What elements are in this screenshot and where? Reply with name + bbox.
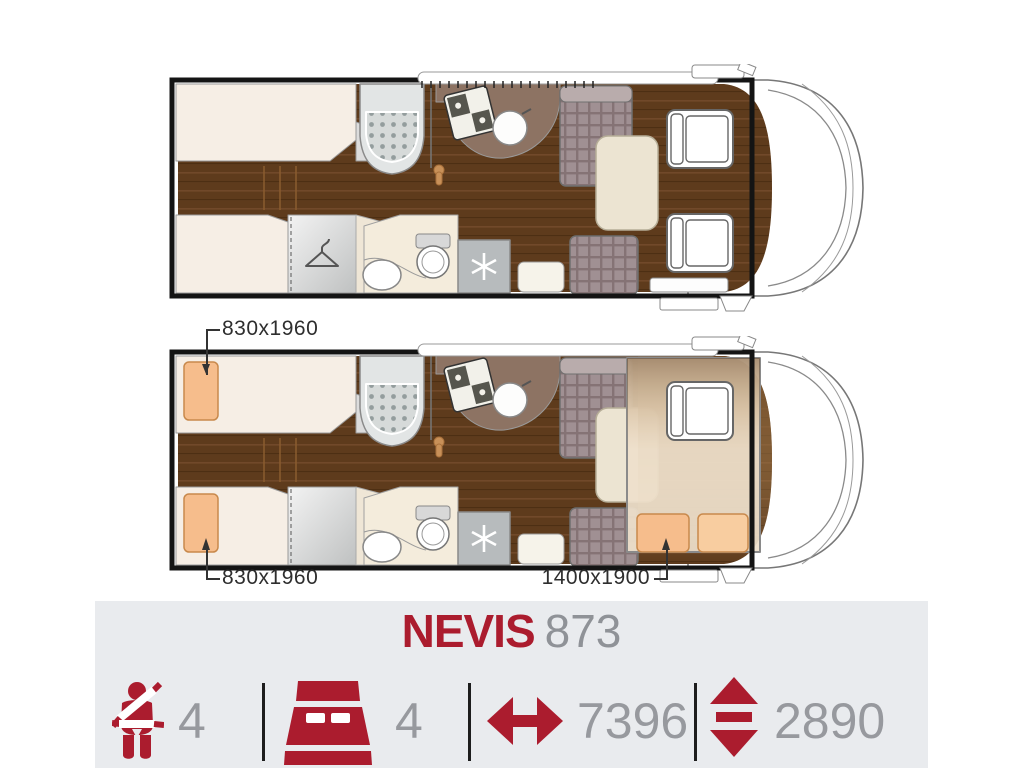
model-name: NEVIS bbox=[402, 605, 535, 657]
model-title: NEVIS873 bbox=[95, 605, 928, 657]
divider bbox=[694, 683, 697, 761]
interior-step bbox=[650, 278, 728, 292]
floorplan-day bbox=[168, 64, 868, 314]
height-value: 2890 bbox=[774, 691, 885, 751]
vertical-double-arrow-icon bbox=[706, 677, 762, 757]
fridge bbox=[458, 512, 510, 565]
bed-dimension-label: 830x1960 bbox=[222, 317, 318, 341]
divider bbox=[468, 683, 471, 761]
kitchen-sink-icon bbox=[493, 383, 527, 417]
beds-value: 4 bbox=[395, 691, 423, 751]
rear-single-bed-bottom bbox=[176, 487, 288, 565]
rear-single-bed-bottom bbox=[176, 215, 288, 293]
entry-mat bbox=[518, 262, 564, 292]
leader-line bbox=[206, 329, 220, 375]
rear-single-bed-top bbox=[176, 84, 374, 161]
bathroom-sink-icon bbox=[363, 532, 401, 562]
floorplan-sheet: { "model": { "name": "NEVIS", "variant":… bbox=[0, 0, 1024, 768]
tap-icon bbox=[434, 165, 444, 185]
bed-dimension-label: 830x1960 bbox=[222, 566, 318, 590]
fridge bbox=[458, 240, 510, 293]
cab-seat-top bbox=[667, 382, 733, 440]
bed-dimension-label: 1400x1900 bbox=[538, 566, 650, 590]
pillow bbox=[637, 514, 689, 552]
floorplan-night bbox=[168, 336, 868, 586]
seats-value: 4 bbox=[178, 691, 206, 751]
dinette-bench-bottom bbox=[570, 236, 638, 294]
bathroom bbox=[363, 215, 458, 293]
horizontal-double-arrow-icon bbox=[487, 693, 563, 749]
leader-line bbox=[206, 545, 220, 580]
bathroom bbox=[363, 487, 458, 565]
length-value: 7396 bbox=[577, 691, 688, 751]
double-bed-icon bbox=[282, 681, 374, 765]
model-variant: 873 bbox=[545, 605, 622, 657]
leader-line bbox=[654, 548, 668, 580]
entry-mat bbox=[518, 534, 564, 564]
pillow bbox=[698, 514, 748, 552]
seatbelt-passenger-icon bbox=[112, 681, 164, 763]
cab-seat-top bbox=[667, 110, 733, 168]
bathroom-sink-icon bbox=[363, 260, 401, 290]
kitchen-sink-icon bbox=[493, 111, 527, 145]
pillow bbox=[184, 494, 218, 552]
divider bbox=[262, 683, 265, 761]
tap-icon bbox=[434, 437, 444, 457]
cab-seat-bottom bbox=[667, 214, 733, 272]
dinette-table bbox=[596, 136, 658, 230]
spec-bar: NEVIS873 4 4 7396 bbox=[95, 601, 928, 768]
